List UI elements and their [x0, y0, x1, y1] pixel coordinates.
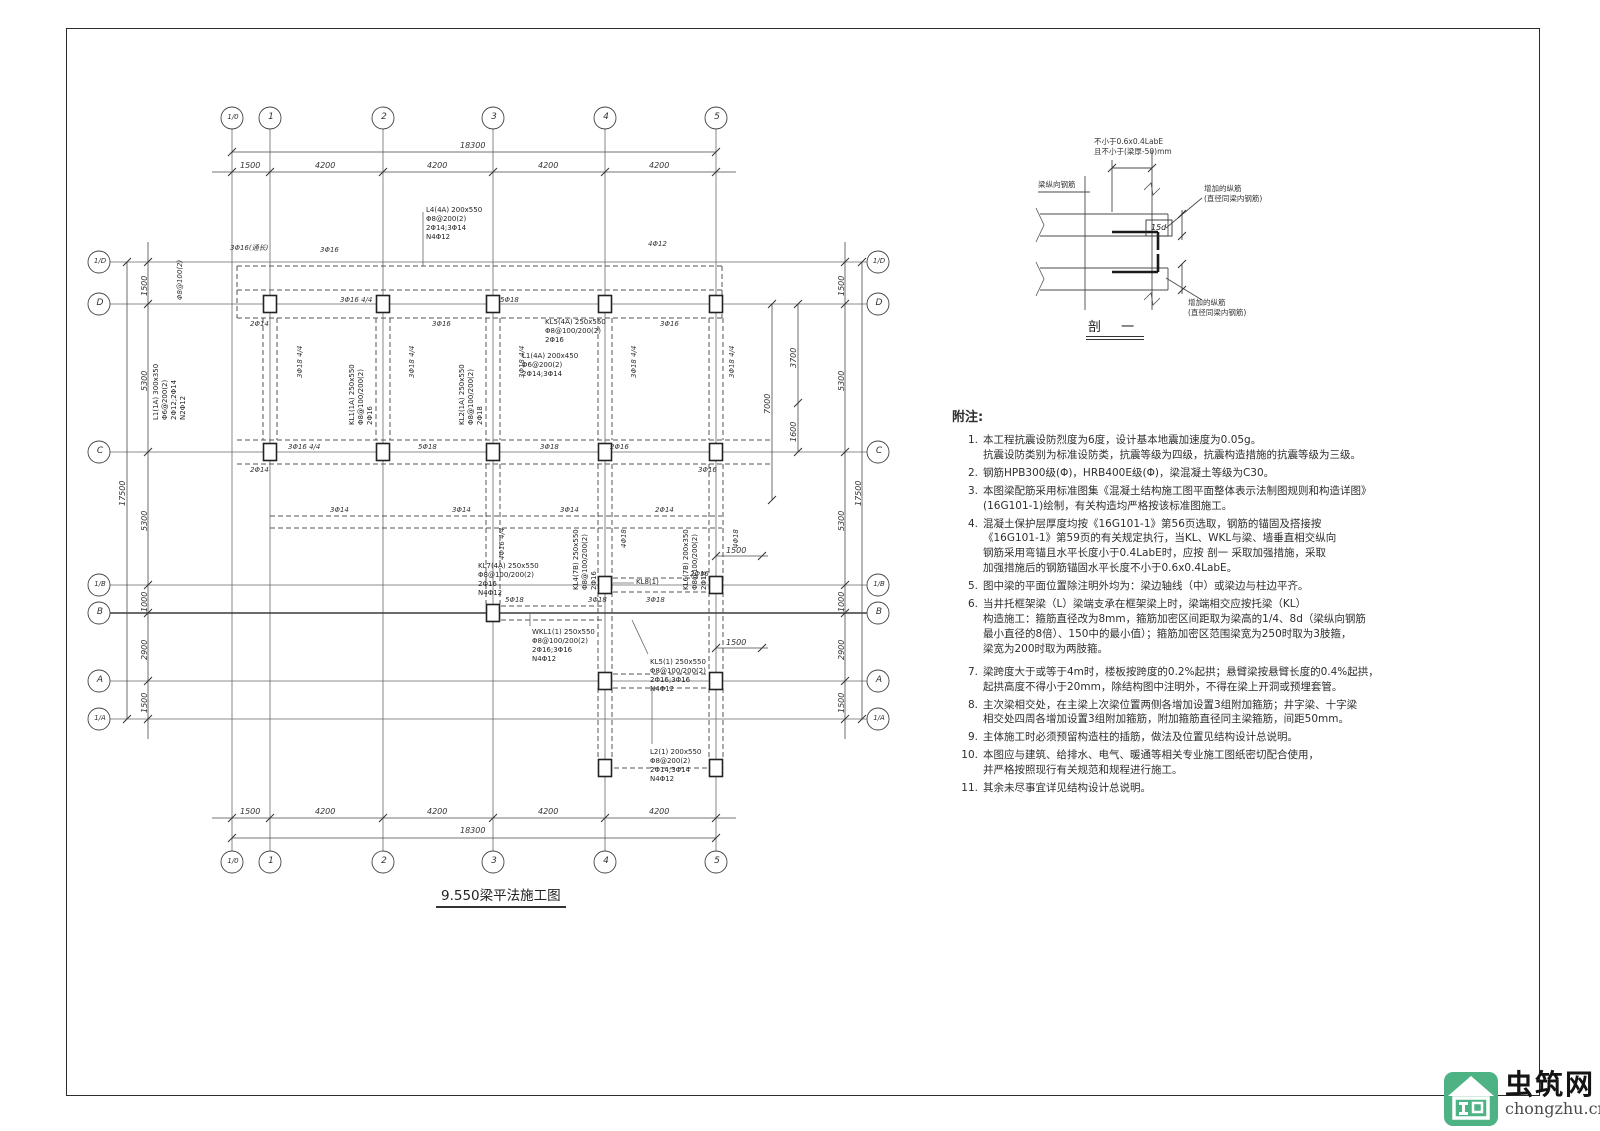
axis-bubble-label: 4: [594, 856, 618, 866]
axis-bubble-label: 1/A: [867, 714, 891, 722]
beam-label: KL5(4A) 250x550 Φ8@100/200(2) 2Φ16: [545, 318, 606, 345]
dim-label: 4200: [538, 807, 558, 816]
detail-lines: [1038, 150, 1202, 310]
note-text: 本图应与建筑、给排水、电气、暖通等相关专业施工图纸密切配合使用， 并严格按照现行…: [983, 748, 1319, 778]
dim-label: 5300: [837, 511, 846, 531]
rebar-tag: 2Φ16: [610, 443, 629, 451]
axis-bubble-label: 5: [705, 856, 729, 866]
dim-label: 5300: [140, 511, 149, 531]
detail-dim-note: 不小于0.6x0.4LabE 且不小于(梁厚-50)mm: [1094, 137, 1172, 157]
detail-right-label-bottom: 增加的纵筋 (直径同梁内钢筋): [1188, 298, 1246, 318]
rebar-tag: 3Φ16: [698, 466, 717, 474]
detail-added-bars: [1112, 232, 1158, 272]
rebar-tag: 3Φ18 4/4: [728, 346, 736, 378]
dim-total-label: 18300: [460, 141, 485, 150]
note-text: 混凝土保护层厚度均按《16G101-1》第56页选取，钢筋的锚固及搭接按 《16…: [983, 517, 1336, 577]
rebar-tag: 4Φ12: [648, 240, 667, 248]
dim-label: 5300: [140, 371, 149, 391]
axis-bubbles: [88, 107, 889, 873]
rebar-tag: 2Φ14: [250, 320, 269, 328]
rebar-tag: 3Φ18: [540, 443, 559, 451]
axis-bubble-label: D: [867, 298, 891, 308]
beam-label: L2(1) 200x550 Φ8@200(2) 2Φ14;3Φ14 N4Φ12: [650, 748, 701, 784]
dim-label: 1500: [240, 807, 260, 816]
rebar-tag: 3Φ16: [432, 320, 451, 328]
beam-label: KL6(7B) 200x350 Φ8@100/200(2) 2Φ18: [682, 529, 709, 590]
axis-bubble-label: C: [88, 446, 112, 456]
detail-ticks: [1108, 164, 1186, 294]
dim-label: 4200: [538, 161, 558, 170]
rebar-tag: 5Φ18: [418, 443, 437, 451]
note-text: 主体施工时必须预留构造柱的插筋，做法及位置见结构设计总说明。: [983, 730, 1298, 745]
dim-label: 2900: [837, 640, 846, 660]
rebar-tag: 4Φ16 4/4: [498, 528, 506, 560]
rebar-tag: 3Φ18 4/4: [630, 346, 638, 378]
dim-label: 1500: [837, 276, 846, 296]
axis-bubble-label: B: [867, 607, 891, 617]
axis-bubble-label: 5: [705, 112, 729, 122]
note-number: 2.: [952, 466, 978, 481]
rebar-tag: Φ8@100(2): [176, 260, 184, 300]
note-number: 10.: [952, 748, 978, 778]
detail-anchor-length: 15d: [1151, 223, 1166, 232]
detail-caption: 剖 一: [1086, 316, 1144, 340]
axis-bubble-label: 1/B: [88, 580, 112, 588]
detail-right-label-top: 增加的纵筋 (直径同梁内钢筋): [1204, 184, 1262, 204]
dim-label: 1500: [726, 638, 746, 647]
axis-bubble-label: A: [88, 675, 112, 685]
note-number: 8.: [952, 698, 978, 728]
dim-label: 1600: [789, 422, 798, 442]
dim-label: 1500: [140, 693, 149, 713]
beam-label: KL1(1A) 250x550 Φ8@100/200(2) 2Φ16: [348, 364, 375, 425]
axis-bubble-label: 2: [372, 856, 396, 866]
note-number: 7.: [952, 665, 978, 695]
note-text: 梁跨度大于或等于4m时，楼板按跨度的0.2%起拱；悬臂梁按悬臂长度的0.4%起拱…: [983, 665, 1379, 695]
axis-bubble-label: 3: [482, 856, 506, 866]
axis-bubble-label: 1/B: [867, 580, 891, 588]
notes-heading: 附注:: [952, 406, 1392, 425]
rebar-tag: 3Φ16(通长): [230, 243, 268, 253]
axis-bubble-label: 1/D: [88, 257, 112, 265]
dimension-lines: [127, 152, 862, 838]
dim-label: 4200: [315, 807, 335, 816]
chongzhu-logo[interactable]: 虫筑网 chongzhu.cn: [1444, 1070, 1600, 1126]
beam-label: L4(4A) 200x550 Φ8@200(2) 2Φ14;3Φ14 N4Φ12: [426, 206, 482, 242]
rebar-tag: 3Φ18: [646, 596, 665, 604]
axis-bubble-label: B: [88, 607, 112, 617]
note-item: 9.主体施工时必须预留构造柱的插筋，做法及位置见结构设计总说明。: [952, 730, 1392, 745]
rebar-tag: 2Φ16: [690, 570, 709, 578]
note-item: 4.混凝土保护层厚度均按《16G101-1》第56页选取，钢筋的锚固及搭接按 《…: [952, 517, 1392, 577]
rebar-tag: 3Φ16 4/4: [288, 443, 320, 451]
rebar-tag: 2Φ14: [655, 506, 674, 514]
axis-bubble-label: C: [867, 446, 891, 456]
rebar-tag: 4Φ18: [732, 529, 740, 548]
beam-label: KL5(1) 250x550 Φ8@100/200(2) 2Φ16;3Φ16 N…: [650, 658, 706, 694]
note-number: 3.: [952, 484, 978, 514]
note-number: 1.: [952, 433, 978, 463]
dim-label: 4200: [649, 807, 669, 816]
axis-bubble-label: 4: [594, 112, 618, 122]
drawing-title: 9.550梁平法施工图: [436, 884, 566, 908]
rebar-tag: 3Φ14: [560, 506, 579, 514]
note-number: 11.: [952, 781, 978, 796]
rebar-tag: 3Φ18 4/4: [408, 346, 416, 378]
note-text: 钢筋HPB300级(Φ)，HRB400E级(Φ)，梁混凝土等级为C30。: [983, 466, 1274, 481]
dim-label: 1000: [837, 592, 846, 612]
dim-label: 4200: [649, 161, 669, 170]
note-item: 7.梁跨度大于或等于4m时，楼板按跨度的0.2%起拱；悬臂梁按悬臂长度的0.4%…: [952, 665, 1392, 695]
note-number: 5.: [952, 579, 978, 594]
dim-label: 1500: [837, 693, 846, 713]
note-text: 本图梁配筋采用标准图集《混凝土结构施工图平面整体表示法制图规则和构造详图》 (1…: [983, 484, 1372, 514]
dim-label: 7000: [763, 394, 772, 414]
general-notes: 附注: 1.本工程抗震设防烈度为6度，设计基本地震加速度为0.05g。 抗震设防…: [952, 406, 1392, 799]
axis-bubble-label: 2: [372, 112, 396, 122]
axis-bubble-label: 1/D: [867, 257, 891, 265]
dim-label: 3700: [789, 348, 798, 368]
dim-label: 1000: [140, 592, 149, 612]
axis-bubble-label: 1/0: [221, 113, 245, 121]
axis-bubble-label: 3: [482, 112, 506, 122]
rebar-tag: 3Φ14: [452, 506, 471, 514]
note-item: 8.主次梁相交处，在主梁上次梁位置两侧各增加设置3组附加箍筋；井字梁、十字梁 相…: [952, 698, 1392, 728]
rebar-tag: 3Φ18 4/4: [296, 346, 304, 378]
note-text: 其余未尽事宜详见结构设计总说明。: [983, 781, 1151, 796]
rebar-tag: 5Φ18: [505, 596, 524, 604]
note-item: 11.其余未尽事宜详见结构设计总说明。: [952, 781, 1392, 796]
note-item: 6.当井托框架梁（L）梁端支承在框架梁上时，梁端相交应按托梁（KL） 构造施工：…: [952, 597, 1392, 657]
rebar-tag: 3Φ16 4/4: [340, 296, 372, 304]
note-text: 主次梁相交处，在主梁上次梁位置两侧各增加设置3组附加箍筋；井字梁、十字梁 相交处…: [983, 698, 1357, 728]
drawing-sheet: 1/0 1 2 3 4 5 1/0 1 2 3 4 5 1/D D C 1/B …: [0, 0, 1600, 1131]
rebar-tag: 5Φ18: [500, 296, 519, 304]
axis-bubble-label: 1: [259, 112, 283, 122]
dim-total-label: 17500: [118, 481, 127, 506]
rebar-tag: 3Φ16: [320, 246, 339, 254]
beam-label: KL2(1A) 250x550 Φ8@100/200(2) 2Φ18: [458, 364, 485, 425]
dim-label: 5300: [837, 371, 846, 391]
note-text: 当井托框架梁（L）梁端支承在框架梁上时，梁端相交应按托梁（KL） 构造施工：箍筋…: [983, 597, 1366, 657]
rebar-tag: 3Φ16: [660, 320, 679, 328]
note-item: 2.钢筋HPB300级(Φ)，HRB400E级(Φ)，梁混凝土等级为C30。: [952, 466, 1392, 481]
rebar-tag: 3Φ18 4/4: [518, 346, 526, 378]
dim-total-label: 17500: [854, 481, 863, 506]
note-item: 10.本图应与建筑、给排水、电气、暖通等相关专业施工图纸密切配合使用， 并严格按…: [952, 748, 1392, 778]
note-number: 4.: [952, 517, 978, 577]
logo-domain: chongzhu.cn: [1505, 1099, 1600, 1118]
rebar-tag: 4Φ18: [620, 529, 628, 548]
note-text: 图中梁的平面位置除注明外均为：梁边轴线（中）或梁边与柱边平齐。: [983, 579, 1309, 594]
dim-label: 4200: [427, 161, 447, 170]
beam-label: KL7(4A) 250x550 Φ8@100/200(2) 2Φ16 N4Φ12: [478, 562, 539, 598]
axis-bubble-label: 1: [259, 856, 283, 866]
axis-bubble-label: 1/0: [221, 857, 245, 865]
dim-label: 4200: [427, 807, 447, 816]
axis-bubble-label: D: [88, 298, 112, 308]
dim-label: 1500: [240, 161, 260, 170]
note-number: 9.: [952, 730, 978, 745]
note-item: 1.本工程抗震设防烈度为6度，设计基本地震加速度为0.05g。 抗震设防类别为标…: [952, 433, 1392, 463]
rebar-tag: 3Φ14: [330, 506, 349, 514]
beam-label: L1(4A) 200x450 Φ6@200(2) 2Φ14;3Φ14: [522, 352, 578, 379]
detail-left-label: 梁纵向钢筋: [1038, 180, 1076, 190]
axis-bubble-label: 1/A: [88, 714, 112, 722]
beam-label: L1(1A) 300x350 Φ6@200(2) 2Φ12;2Φ14 N2Φ12: [152, 364, 188, 420]
beam-label: KL4(7B) 250x550 Φ8@100/200(2) 2Φ16: [572, 529, 599, 590]
dim-label: 2900: [140, 640, 149, 660]
beam-label: KL8(1): [636, 578, 659, 587]
rebar-tag: 3Φ18: [588, 596, 607, 604]
grid-lines: [110, 129, 867, 851]
logo-name: 虫筑网: [1505, 1070, 1600, 1099]
dim-total-label: 18300: [460, 826, 485, 835]
detail-break-marks: [1036, 183, 1160, 305]
rebar-tag: 2Φ14: [250, 466, 269, 474]
note-item: 5.图中梁的平面位置除注明外均为：梁边轴线（中）或梁边与柱边平齐。: [952, 579, 1392, 594]
note-item: 3.本图梁配筋采用标准图集《混凝土结构施工图平面整体表示法制图规则和构造详图》 …: [952, 484, 1392, 514]
note-number: 6.: [952, 597, 978, 657]
note-text: 本工程抗震设防烈度为6度，设计基本地震加速度为0.05g。 抗震设防类别为标准设…: [983, 433, 1361, 463]
dim-label: 1500: [140, 276, 149, 296]
beam-label: WKL1(1) 250x550 Φ8@100/200(2) 2Φ16;3Φ16 …: [532, 628, 595, 664]
dim-label: 4200: [315, 161, 335, 170]
house-icon: [1444, 1070, 1498, 1126]
axis-bubble-label: A: [867, 675, 891, 685]
